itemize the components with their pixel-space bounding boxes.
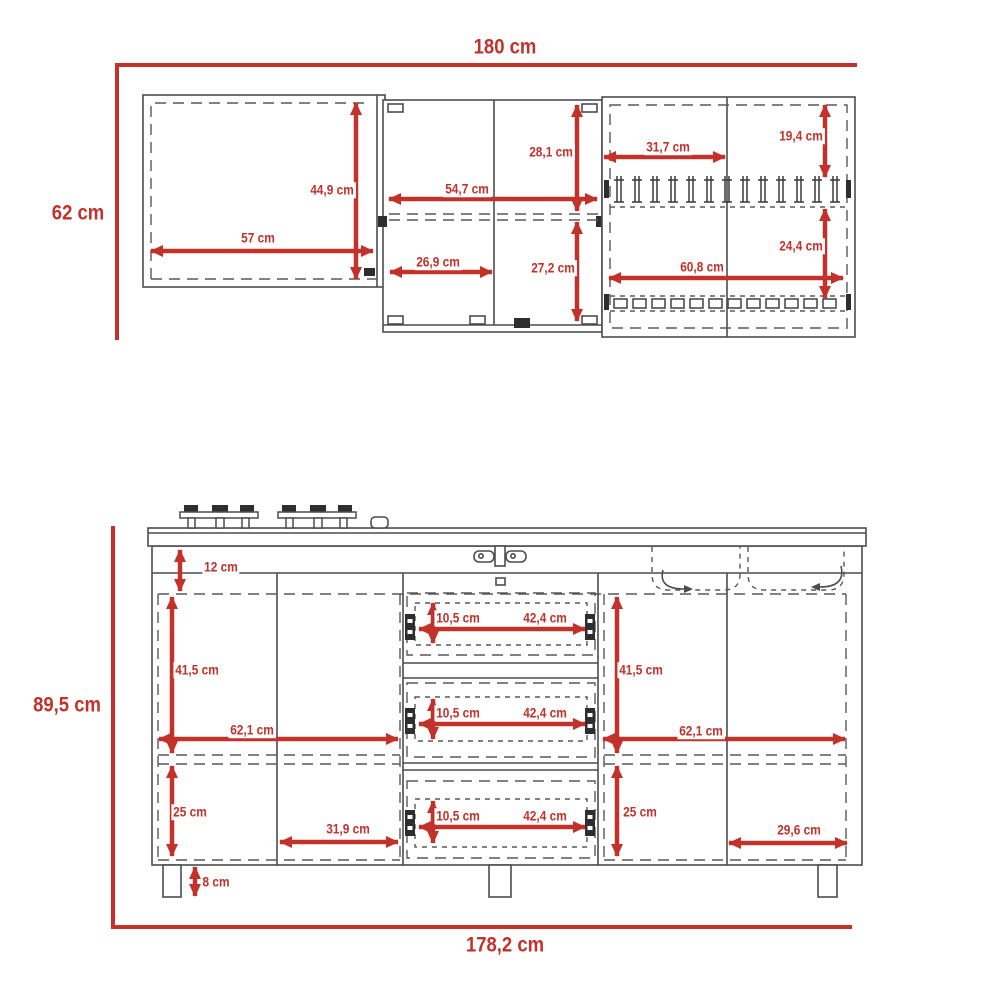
dim-drawer-2-height-label: 10,5 cm	[434, 705, 481, 721]
dim-base-right-bottom-height-label: 25 cm	[621, 804, 658, 820]
dim-upper-left-height-label: 44,9 cm	[308, 182, 355, 198]
cabinet-line-drawing	[0, 0, 1000, 1000]
dim-base-total-height-label: 89,5 cm	[31, 694, 102, 717]
dim-upper-center-width-label: 54,7 cm	[443, 181, 490, 197]
dim-upper-right-top-height-label: 19,4 cm	[777, 128, 824, 144]
dim-upper-total-width-label: 180 cm	[472, 36, 538, 59]
dim-base-right-top-height-label: 41,5 cm	[617, 662, 664, 678]
dim-upper-center-door-width-label: 26,9 cm	[414, 254, 461, 270]
dim-base-left-door-width-label: 31,9 cm	[324, 821, 371, 837]
dim-upper-right-width-label: 60,8 cm	[678, 259, 725, 275]
upper-center-cabinet	[378, 100, 605, 332]
cabinet-dimension-diagram: 180 cm 62 cm 44,9 cm 57 cm 28,1 cm 54,7 …	[0, 0, 1000, 1000]
dim-base-total-width-label: 178,2 cm	[464, 934, 546, 957]
dim-base-left-top-height-label: 41,5 cm	[173, 662, 220, 678]
dim-base-leg-height-label: 8 cm	[201, 874, 232, 890]
dim-upper-right-bottom-height-label: 24,4 cm	[777, 238, 824, 254]
dim-base-left-bottom-height-label: 25 cm	[171, 804, 208, 820]
dim-base-right-door-width-label: 29,6 cm	[775, 822, 822, 838]
dim-drawer-1-height-label: 10,5 cm	[434, 610, 481, 626]
dim-upper-left-width-label: 57 cm	[239, 230, 276, 246]
dim-upper-center-top-height-label: 28,1 cm	[527, 144, 574, 160]
dim-upper-center-bottom-height-label: 27,2 cm	[529, 260, 576, 276]
dim-drawer-2-width-label: 42,4 cm	[521, 705, 568, 721]
dim-upper-right-door-width-label: 31,7 cm	[644, 139, 691, 155]
dim-upper-total-height-label: 62 cm	[50, 202, 106, 225]
dim-drawer-3-width-label: 42,4 cm	[521, 808, 568, 824]
dim-base-left-width-label: 62,1 cm	[228, 722, 275, 738]
base-cabinet-body	[148, 505, 866, 897]
dim-base-counter-inset-label: 12 cm	[202, 559, 239, 575]
dim-drawer-3-height-label: 10,5 cm	[434, 808, 481, 824]
dim-base-right-width-label: 62,1 cm	[677, 723, 724, 739]
dim-drawer-1-width-label: 42,4 cm	[521, 610, 568, 626]
